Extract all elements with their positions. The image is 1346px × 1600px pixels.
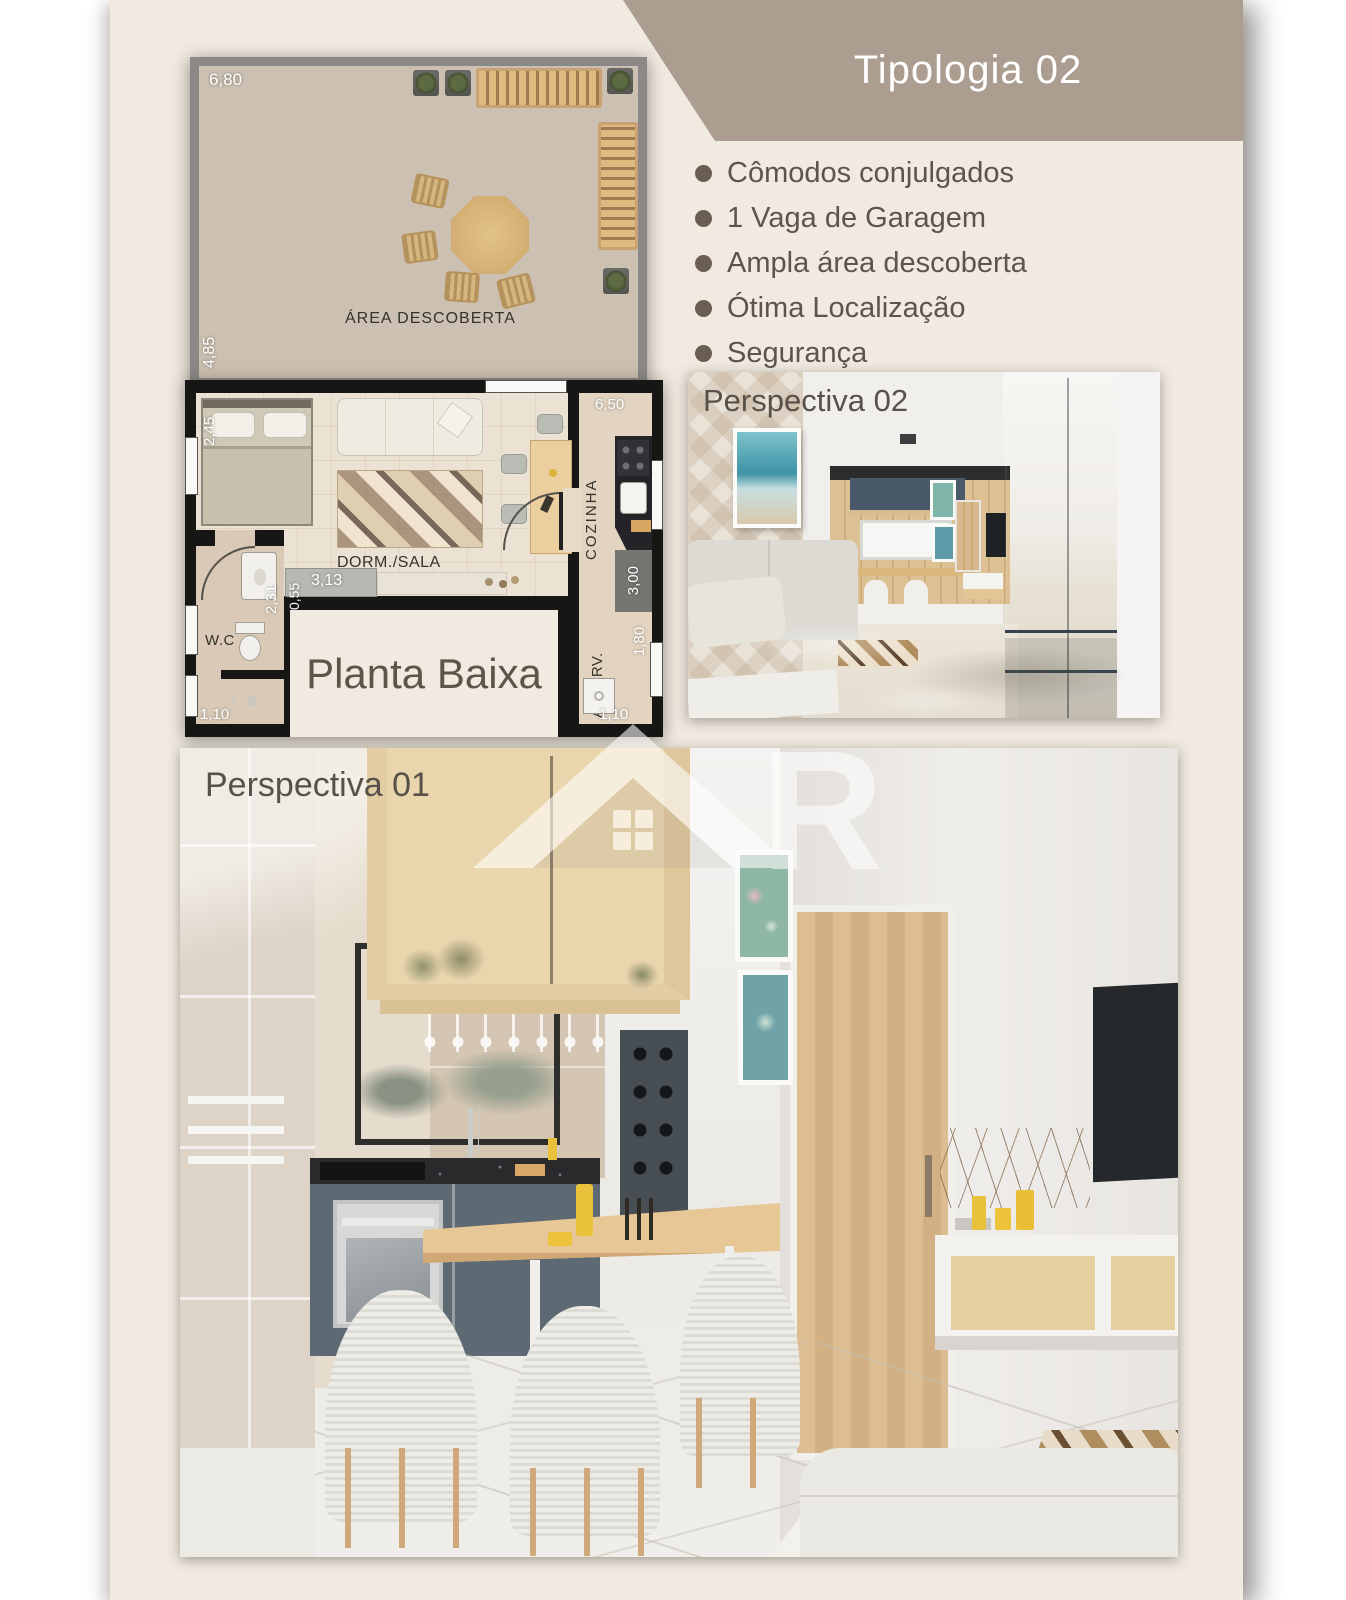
patio-chair bbox=[410, 173, 449, 209]
feature-label: Ampla área descoberta bbox=[727, 247, 1027, 280]
sofa bbox=[337, 398, 483, 456]
dim-console-width: 3,13 bbox=[311, 572, 342, 590]
wall-art-ocean bbox=[733, 428, 801, 528]
feature-label: Ótima Localização bbox=[727, 292, 966, 325]
patio-table bbox=[451, 196, 529, 274]
sideboard-drawer bbox=[1108, 1253, 1178, 1333]
plan-title: Planta Baixa bbox=[306, 650, 542, 698]
bullet-icon bbox=[695, 165, 712, 182]
bar-stool bbox=[904, 580, 928, 610]
foreground-sofa bbox=[800, 1448, 1178, 1557]
flyer-canvas: Tipologia 02 Cômodos conjulgados 1 Vaga … bbox=[0, 0, 1346, 1600]
tv bbox=[1093, 983, 1178, 1182]
feature-label: Segurança bbox=[727, 337, 867, 370]
wardrobe-drawer-line bbox=[1005, 630, 1117, 633]
feature-item: 1 Vaga de Garagem bbox=[695, 202, 1240, 235]
bullet-icon bbox=[695, 345, 712, 362]
tv bbox=[986, 513, 1006, 557]
dim-terrace-width: 6,80 bbox=[209, 70, 242, 90]
window-top bbox=[485, 380, 567, 393]
ceiling-light bbox=[900, 434, 916, 444]
perspective-01-title: Perspectiva 01 bbox=[205, 766, 430, 805]
cutting-board bbox=[515, 1164, 545, 1176]
window-left bbox=[185, 437, 198, 495]
door-opening bbox=[563, 488, 583, 552]
dim-kitchen-right: 3,00 bbox=[625, 566, 642, 595]
chair-legs bbox=[696, 1398, 790, 1488]
planter bbox=[413, 70, 439, 96]
dim-terrace-height: 4,85 bbox=[201, 316, 219, 368]
pillow bbox=[263, 412, 307, 438]
dried-branches bbox=[940, 1128, 1090, 1208]
perspective-02-title: Perspectiva 02 bbox=[703, 383, 908, 419]
feature-item: Segurança bbox=[695, 337, 1240, 370]
chair-legs bbox=[530, 1468, 646, 1556]
duvet bbox=[203, 446, 311, 524]
room-label-bathroom: W.C bbox=[205, 632, 235, 649]
toilet-tank bbox=[235, 622, 265, 634]
dim-laundry-height: 1,80 bbox=[631, 616, 648, 656]
decor-vases bbox=[485, 578, 493, 586]
floorplan-apartment: 6,50 COZINHA 3,00 1,80 A. SERV. 1,10 2,3… bbox=[185, 380, 663, 737]
toilet-bowl bbox=[239, 635, 261, 661]
bench-right bbox=[598, 122, 638, 250]
dim-kitchen-top: 6,50 bbox=[595, 396, 624, 413]
dim-bed-wall: 2,45 bbox=[201, 402, 218, 446]
shelf-plants bbox=[394, 926, 490, 1000]
feature-label: Cômodos conjulgados bbox=[727, 157, 1014, 190]
yellow-vase bbox=[972, 1196, 986, 1230]
washer-door bbox=[594, 691, 604, 701]
planter bbox=[445, 70, 471, 96]
planter bbox=[607, 68, 633, 94]
perspective-02-image: Perspectiva 02 bbox=[688, 372, 1160, 718]
feature-item: Cômodos conjulgados bbox=[695, 157, 1240, 190]
feature-item: Ampla área descoberta bbox=[695, 247, 1240, 280]
candelabra bbox=[625, 1198, 655, 1240]
chair-legs bbox=[345, 1448, 465, 1548]
counter-block: 3,00 bbox=[615, 550, 652, 612]
feature-item: Ótima Localização bbox=[695, 292, 1240, 325]
feature-label: 1 Vaga de Garagem bbox=[727, 202, 986, 235]
toilet bbox=[235, 622, 265, 662]
cutting-board bbox=[631, 520, 651, 532]
door-leaf bbox=[559, 492, 563, 550]
window-left bbox=[185, 675, 198, 717]
cooktop bbox=[320, 1162, 425, 1180]
patio-chair bbox=[496, 272, 536, 309]
kitchen-sink bbox=[620, 482, 647, 514]
floorplan-terrace: 6,80 4,85 ÁREA DESCOBERTA bbox=[190, 57, 647, 387]
throw-pillow bbox=[437, 402, 473, 438]
door-handle bbox=[925, 1155, 932, 1217]
bullet-icon bbox=[695, 300, 712, 317]
spray-bottle bbox=[548, 1138, 557, 1160]
small-art-frame bbox=[932, 524, 956, 562]
room-label-terrace: ÁREA DESCOBERTA bbox=[345, 310, 516, 328]
title-banner: Tipologia 02 bbox=[623, 0, 1243, 141]
window-right bbox=[650, 642, 663, 697]
wall-shower bbox=[221, 670, 284, 679]
faucet bbox=[468, 1108, 473, 1160]
bullet-icon bbox=[695, 210, 712, 227]
dim-console-depth: 0,55 bbox=[286, 568, 302, 610]
hanging-glasses bbox=[416, 1014, 612, 1052]
patio-chair bbox=[444, 271, 480, 303]
bar-stool bbox=[864, 580, 888, 610]
room-label-kitchen: COZINHA bbox=[583, 442, 600, 560]
page-title: Tipologia 02 bbox=[784, 48, 1082, 93]
wine-rack bbox=[620, 1030, 688, 1216]
shelf-plants bbox=[610, 944, 674, 1000]
shower-head-icon bbox=[247, 696, 257, 706]
yellow-vase bbox=[576, 1184, 593, 1236]
glass-shelf bbox=[380, 1000, 680, 1014]
feature-list: Cômodos conjulgados 1 Vaga de Garagem Am… bbox=[695, 157, 1240, 382]
floor-corner bbox=[180, 1448, 315, 1557]
floating-console bbox=[963, 573, 1003, 599]
door-opening bbox=[215, 530, 255, 546]
page-background: Tipologia 02 Cômodos conjulgados 1 Vaga … bbox=[110, 0, 1243, 1600]
oven-handle bbox=[342, 1218, 434, 1226]
bullet-icon bbox=[695, 255, 712, 272]
watermark-logo: R bbox=[465, 718, 910, 870]
watermark-letter: R bbox=[761, 718, 884, 870]
stove-icon bbox=[617, 440, 649, 476]
towel-rack bbox=[188, 1078, 284, 1164]
yellow-bowl bbox=[548, 1232, 572, 1246]
window-left bbox=[185, 605, 198, 655]
dining-chair bbox=[501, 454, 527, 474]
bar-counter bbox=[844, 568, 970, 576]
yellow-vase bbox=[1016, 1190, 1034, 1230]
rug bbox=[337, 470, 483, 548]
room-label-living: DORM./SALA bbox=[337, 554, 441, 572]
entry-door bbox=[955, 500, 981, 572]
headboard bbox=[203, 400, 311, 408]
dining-chair bbox=[537, 414, 563, 434]
planter bbox=[603, 268, 629, 294]
vase bbox=[549, 469, 557, 477]
house-logo-icon: R bbox=[465, 718, 910, 870]
bed-pillows bbox=[688, 575, 787, 649]
small-art-frame bbox=[930, 480, 956, 520]
yellow-mug bbox=[995, 1208, 1011, 1230]
sideboard-drawer bbox=[948, 1253, 1098, 1333]
dim-wc-height: 2,31 bbox=[263, 570, 280, 614]
bench-top bbox=[476, 68, 602, 108]
dim-wc-bottom: 1,10 bbox=[200, 706, 229, 723]
wall-art-botanical bbox=[738, 970, 793, 1085]
patio-chair bbox=[401, 230, 439, 264]
